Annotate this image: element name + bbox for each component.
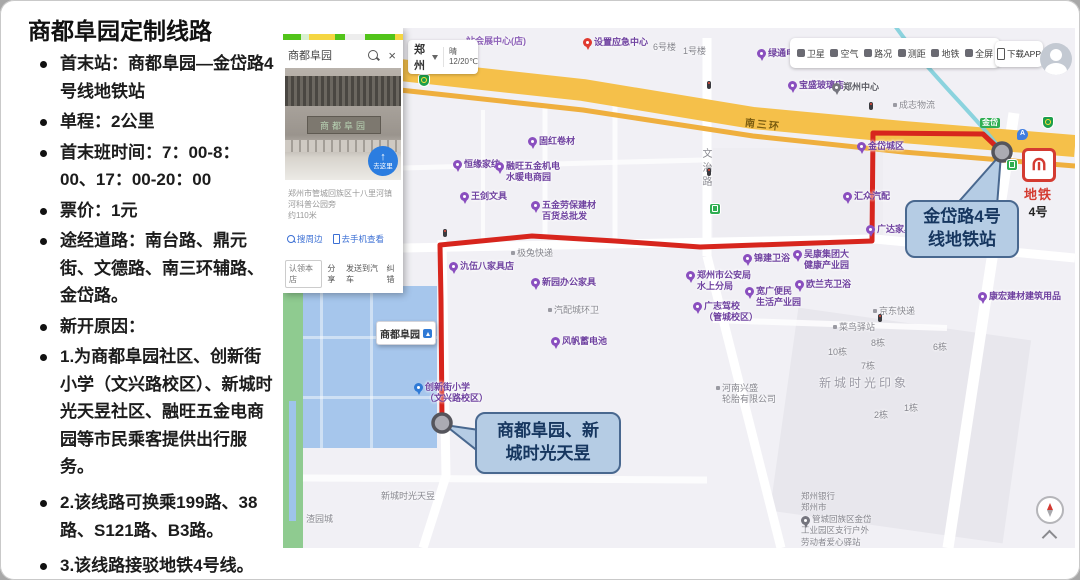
- poi-label: 菜鸟驿站: [839, 322, 875, 333]
- poi-pin-icon: [495, 162, 504, 171]
- bullet-item: 单程：2公里: [34, 108, 274, 136]
- poi-label: 宽广便民生活产业园: [756, 286, 801, 308]
- poi-bank-block[interactable]: 郑州银行郑州市管城回族区金岱工业园区支行户外劳动者爱心驿站: [801, 491, 872, 548]
- map-poi[interactable]: 吴康集团大健康产业园: [793, 249, 849, 271]
- poi-pin-icon: [801, 516, 810, 525]
- poi-label: 广志驾校（管城校区）: [704, 301, 758, 323]
- toolbar-button-label: 地铁: [941, 47, 959, 60]
- poi-label: 1栋: [904, 403, 918, 414]
- toolbar-button-路况[interactable]: 路况: [864, 47, 892, 60]
- search-bar[interactable]: 商都阜园 ×: [283, 44, 403, 66]
- map-poi[interactable]: 风帆蓄电池: [551, 336, 607, 347]
- traffic-icon: [864, 49, 872, 57]
- address-text: 郑州市管城回族区十八里河镇河科普公园旁: [288, 189, 392, 209]
- poi-dot-icon: [548, 308, 552, 312]
- view-on-phone-link[interactable]: 去手机查看: [333, 233, 385, 245]
- poi-pin-icon: [793, 250, 802, 259]
- poi-dot-icon: [833, 325, 837, 329]
- poi-label: 康宏建材建筑用品: [989, 291, 1061, 302]
- poi-pin-icon: [788, 81, 797, 90]
- poi-label: 新城时光天昱: [381, 491, 435, 502]
- map-poi[interactable]: 氿伍八家具店: [449, 261, 514, 272]
- origin-callout-line2: 城时光天昱: [477, 443, 619, 466]
- go-there-label: 去这里: [373, 164, 393, 171]
- poi-label: 7栋: [861, 361, 875, 372]
- poi-label: 新城时光印象: [819, 376, 909, 390]
- station-callout-line2: 线地铁站: [907, 229, 1017, 252]
- map-poi[interactable]: 融旺五金机电水暖电商园: [495, 161, 560, 183]
- up-arrow-icon: ↑: [380, 152, 386, 163]
- origin-station-marker[interactable]: [433, 414, 451, 432]
- map-poi: 新城时光天昱: [381, 491, 435, 502]
- traffic-light-icon: [869, 102, 873, 110]
- metro-word: 地铁: [1022, 184, 1054, 203]
- toolbar-button-空气[interactable]: 空气: [830, 47, 858, 60]
- poi-label: 创新街小学（文兴路校区）: [425, 382, 488, 404]
- map-poi[interactable]: 郑州中心: [832, 82, 879, 93]
- map-poi: 渣园城: [306, 514, 333, 525]
- origin-callout[interactable]: 商都阜园、新 城时光天昱: [475, 412, 621, 474]
- metro-entrance-icon[interactable]: A: [1017, 129, 1028, 140]
- station-callout[interactable]: 金岱路4号 线地铁站: [905, 200, 1019, 258]
- origin-map-label[interactable]: 商都阜园: [376, 321, 436, 345]
- poi-pin-icon: [843, 192, 852, 201]
- poi-pin-icon: [743, 254, 752, 263]
- toolbar-button-label: 路况: [874, 47, 892, 60]
- poi-pin-icon: [757, 49, 766, 58]
- map-poi[interactable]: 固红卷材: [528, 136, 575, 147]
- poi-pin-icon: [866, 225, 875, 234]
- map-poi: 1栋: [904, 403, 918, 414]
- map-poi: 1号楼: [683, 46, 706, 57]
- photo-sign-text: 商都阜园: [320, 119, 368, 132]
- bank-label-line: 工业园区支行户外: [801, 525, 872, 536]
- origin-callout-line1: 商都阜园、新: [477, 420, 619, 443]
- metro-line-number: 4号: [1022, 203, 1054, 220]
- bullet-item: 2.该线路可换乘199路、38路、S121路、B3路。: [34, 489, 274, 544]
- poi-label: A: [1020, 130, 1025, 138]
- map-poi[interactable]: 金岱城区: [857, 141, 904, 152]
- poi-pin-icon: [978, 292, 987, 301]
- bullet-item: 首末站：商都阜园—金岱路4号线地铁站: [34, 50, 274, 105]
- map-poi[interactable]: 五金劳保建材百货总批发: [531, 200, 596, 222]
- poi-label: 五金劳保建材百货总批发: [542, 200, 596, 222]
- map-poi[interactable]: 设置应急中心: [583, 37, 648, 48]
- satellite-icon: [797, 49, 805, 57]
- metro-station-marker[interactable]: [993, 143, 1011, 161]
- map-poi: 新城时光印象: [819, 376, 909, 390]
- origin-map-label-text: 商都阜园: [380, 326, 420, 341]
- map-poi: 6号楼: [653, 42, 676, 53]
- toolbar-button-全屏[interactable]: 全屏: [965, 47, 993, 60]
- poi-label: 融旺五金机电水暖电商园: [506, 161, 560, 183]
- map-poi: 极兔快递: [511, 248, 553, 259]
- place-address: 郑州市管城回族区十八里河镇河科普公园旁 约110米: [288, 188, 398, 222]
- poi-pin-icon: [832, 83, 841, 92]
- compass-control[interactable]: [1036, 496, 1064, 524]
- bullet-item: 首末班时间：7：00-8：00、17：00-20：00: [34, 139, 274, 194]
- poi-label: 汇众汽配: [854, 191, 890, 202]
- poi-label: 吴康集团大健康产业园: [804, 249, 849, 271]
- map-poi[interactable]: 汇众汽配: [843, 191, 890, 202]
- slide-card: 商都阜园定制线路 首末站：商都阜园—金岱路4号线地铁站单程：2公里首末班时间：7…: [0, 0, 1080, 580]
- go-there-button[interactable]: ↑ 去这里: [368, 146, 398, 176]
- poi-pin-icon: [551, 337, 560, 346]
- poi-pin-icon: [414, 383, 423, 392]
- bullet-item: 1.为商都阜园社区、创新街小学（文兴路校区）、新城时光天昱社区、融旺五金电商园等…: [34, 343, 274, 481]
- weather-widget[interactable]: 晴 12/20℃: [443, 47, 478, 67]
- poi-pin-icon: [583, 38, 592, 47]
- map-poi[interactable]: 郑州市公安局水上分局: [686, 270, 751, 292]
- poi-label: 汽配城环卫: [554, 305, 599, 316]
- phone-icon: [997, 48, 1005, 60]
- compass-south-needle: [1047, 510, 1053, 520]
- traffic-light-icon: [707, 168, 711, 176]
- poi-pin-icon: [460, 192, 469, 201]
- map-poi[interactable]: 新园办公家具: [531, 277, 596, 288]
- bus-stop-icon[interactable]: [710, 204, 720, 214]
- poi-label: 设置应急中心: [594, 37, 648, 48]
- poi-pin-icon: [449, 262, 458, 271]
- poi-label: 2栋: [874, 410, 888, 421]
- map-canvas[interactable]: 南三环 文治路 站会展中心(店)设置应急中心6号楼1号楼绿通电动车宝盛玻璃店郑州…: [283, 28, 1075, 548]
- road-minor: [303, 478, 707, 480]
- poi-label: 金岱: [982, 118, 998, 128]
- subway-icon: [931, 49, 939, 57]
- map-poi[interactable]: 金岱: [980, 118, 1000, 128]
- share-link[interactable]: 分享: [327, 263, 342, 285]
- poi-pin-icon: [857, 142, 866, 151]
- poi-pin-icon: [531, 201, 540, 210]
- map-poi[interactable]: 广志驾校（管城校区）: [693, 301, 758, 323]
- toolbar-button-测距[interactable]: 测距: [898, 47, 926, 60]
- report-error-link[interactable]: 纠错: [386, 263, 401, 285]
- highway-shield-icon: [1043, 117, 1053, 128]
- poi-label: 王剑文具: [471, 191, 507, 202]
- map-poi: 8栋: [871, 338, 885, 349]
- station-callout-line1: 金岱路4号: [907, 206, 1017, 229]
- poi-label: 渣园城: [306, 514, 333, 525]
- bullet-item: 途经道路：南台路、鼎元街、文德路、南三环辅路、金岱路。: [34, 227, 274, 310]
- bank-label-line: 管城回族区金岱: [801, 514, 872, 525]
- poi-label: 6栋: [933, 342, 947, 353]
- poi-label: 10栋: [828, 347, 847, 358]
- bus-stop-icon[interactable]: [1007, 160, 1017, 170]
- map-poi[interactable]: 康宏建材建筑用品: [978, 291, 1061, 302]
- pushpin-icon: [423, 329, 432, 338]
- distance-text: 约110米: [288, 211, 317, 220]
- map-poi[interactable]: 王剑文具: [460, 191, 507, 202]
- map-poi: 成志物流: [893, 100, 935, 111]
- metro-station-badge[interactable]: 地铁 4号: [1022, 148, 1054, 220]
- bullet-list: 首末站：商都阜园—金岱路4号线地铁站单程：2公里首末班时间：7：00-8：00、…: [34, 50, 274, 580]
- map-poi: 河南兴盛轮胎有限公司: [716, 383, 776, 405]
- poi-pin-icon: [745, 287, 754, 296]
- toolbar-button-label: 空气: [840, 47, 858, 60]
- map-poi: 2栋: [874, 410, 888, 421]
- toolbar-button-卫星[interactable]: 卫星: [797, 47, 825, 60]
- search-results-panel: 商都阜园 × 商都阜园 ↑ 去这里 郑州市管城回族区十八里河镇河科普公园旁 约1…: [283, 28, 403, 293]
- poi-label: 金岱城区: [868, 141, 904, 152]
- map-toolbar: 卫星空气路况测距地铁全屏: [790, 38, 1000, 68]
- close-icon[interactable]: ×: [388, 49, 396, 62]
- poi-pin-icon: [453, 160, 462, 169]
- download-app-label: 下载APP: [1007, 48, 1041, 60]
- phone-icon: [333, 234, 340, 244]
- weather-condition: 晴: [449, 47, 457, 56]
- poi-pin-icon: [693, 302, 702, 311]
- poi-label: 固红卷材: [539, 136, 575, 147]
- bullet-item: 票价：1元: [34, 197, 274, 225]
- toolbar-button-label: 全屏: [975, 47, 993, 60]
- highway-shield-icon: [419, 75, 429, 86]
- city-name: 郑州: [414, 41, 429, 73]
- claim-store-button[interactable]: 认领本店: [285, 260, 322, 288]
- poi-pin-icon: [531, 278, 540, 287]
- avatar[interactable]: [1040, 43, 1072, 75]
- search-nearby-label: 搜周边: [297, 233, 323, 245]
- map-poi: 7栋: [861, 361, 875, 372]
- place-photo[interactable]: 商都阜园 ↑ 去这里: [285, 68, 401, 180]
- bank-label-line: 劳动者爱心驿站: [801, 537, 872, 548]
- poi-dot-icon: [716, 386, 720, 390]
- compass-north-needle: [1047, 500, 1053, 510]
- poi-label: 郑州中心: [843, 82, 879, 93]
- search-nearby-link[interactable]: 搜周边: [287, 233, 323, 245]
- traffic-light-icon: [878, 314, 882, 322]
- map-poi: 10栋: [828, 347, 847, 358]
- toolbar-button-地铁[interactable]: 地铁: [931, 47, 959, 60]
- poi-label: 1号楼: [683, 46, 706, 57]
- poi-label: 8栋: [871, 338, 885, 349]
- poi-label: 极兔快递: [517, 248, 553, 259]
- map-poi: 菜鸟驿站: [833, 322, 875, 333]
- metro-logo-icon: [1022, 148, 1056, 182]
- poi-label: 新园办公家具: [542, 277, 596, 288]
- fullscreen-icon: [965, 49, 973, 57]
- poi-dot-icon: [893, 103, 897, 107]
- photo-building-sign: 商都阜园: [307, 116, 381, 134]
- bank-label-line: 郑州银行: [801, 491, 872, 502]
- poi-label: 氿伍八家具店: [460, 261, 514, 272]
- bullet-item: 3.该线路接驳地铁4号线。: [34, 552, 274, 580]
- poi-label: 风帆蓄电池: [562, 336, 607, 347]
- street-color-strip: [283, 34, 403, 40]
- bank-label-line: 郑州市: [801, 502, 872, 513]
- measure-icon: [898, 49, 906, 57]
- poi-label: 锦建卫浴: [754, 253, 790, 264]
- poi-pin-icon: [686, 271, 695, 280]
- poi-dot-icon: [511, 251, 515, 255]
- map-poi: 6栋: [933, 342, 947, 353]
- poi-label: 郑州市公安局水上分局: [697, 270, 751, 292]
- view-on-phone-label: 去手机查看: [342, 233, 385, 245]
- chevron-down-icon: [432, 55, 438, 63]
- send-to-car-link[interactable]: 发送到汽车: [346, 263, 382, 285]
- download-app-button[interactable]: 下载APP: [995, 41, 1043, 67]
- map-poi[interactable]: 锦建卫浴: [743, 253, 790, 264]
- panel-actions: 认领本店 分享 发送到汽车 纠错: [285, 260, 401, 288]
- traffic-light-icon: [707, 81, 711, 89]
- poi-label: 6号楼: [653, 42, 676, 53]
- photo-building-vent: [285, 76, 401, 106]
- weather-temp: 12/20℃: [449, 57, 478, 66]
- map-poi[interactable]: 恒缘家纺: [453, 159, 500, 170]
- map-poi[interactable]: 欧兰克卫浴: [795, 279, 851, 290]
- air-quality-icon: [830, 49, 838, 57]
- poi-label: 成志物流: [899, 100, 935, 111]
- toolbar-button-label: 测距: [908, 47, 926, 60]
- traffic-light-icon: [443, 229, 447, 237]
- poi-label: 京东快递: [879, 306, 915, 317]
- map-poi[interactable]: 创新街小学（文兴路校区）: [414, 382, 488, 404]
- page-title: 商都阜园定制线路: [28, 12, 212, 46]
- poi-dot-icon: [873, 309, 877, 313]
- city-selector[interactable]: 郑州 晴 12/20℃: [408, 40, 478, 74]
- search-input[interactable]: 商都阜园: [288, 47, 368, 63]
- search-icon[interactable]: [368, 50, 378, 60]
- poi-label: 河南兴盛轮胎有限公司: [722, 383, 776, 405]
- station-callout-pointer: [955, 154, 1001, 206]
- poi-label: 欧兰克卫浴: [806, 279, 851, 290]
- panel-links: 搜周边 去手机查看: [287, 233, 399, 245]
- toolbar-button-label: 卫星: [807, 47, 825, 60]
- map-poi: 汽配城环卫: [548, 305, 599, 316]
- search-icon: [287, 235, 295, 243]
- bullet-item: 新开原因：: [34, 313, 274, 341]
- poi-pin-icon: [528, 137, 537, 146]
